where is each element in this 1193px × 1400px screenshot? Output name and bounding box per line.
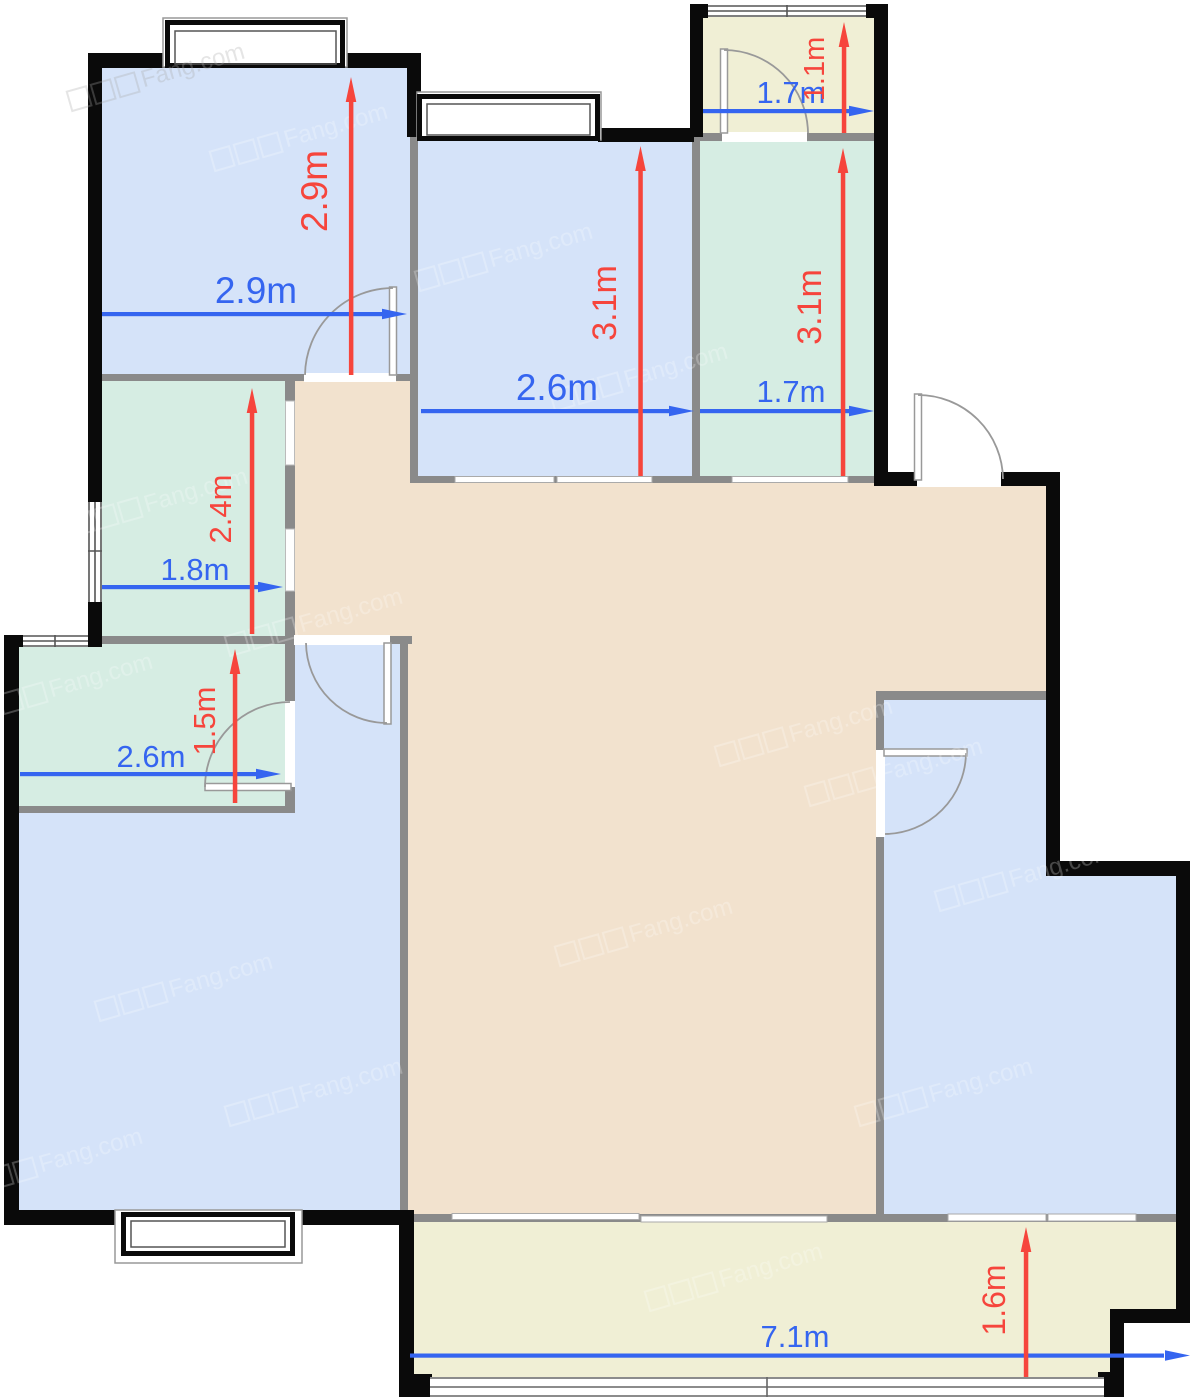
svg-text:2.9m: 2.9m xyxy=(215,270,297,311)
svg-text:1.6m: 1.6m xyxy=(976,1264,1012,1335)
svg-text:3.1m: 3.1m xyxy=(791,269,829,345)
svg-text:1.1m: 1.1m xyxy=(799,37,831,101)
svg-text:2.6m: 2.6m xyxy=(117,739,186,774)
svg-text:1.7m: 1.7m xyxy=(757,374,826,409)
svg-text:7.1m: 7.1m xyxy=(761,1319,830,1354)
svg-text:3.1m: 3.1m xyxy=(586,265,624,341)
svg-text:1.8m: 1.8m xyxy=(161,552,230,587)
svg-text:1.5m: 1.5m xyxy=(187,687,222,756)
svg-text:2.6m: 2.6m xyxy=(516,367,598,408)
svg-text:2.9m: 2.9m xyxy=(294,150,335,232)
svg-text:2.4m: 2.4m xyxy=(203,475,238,544)
